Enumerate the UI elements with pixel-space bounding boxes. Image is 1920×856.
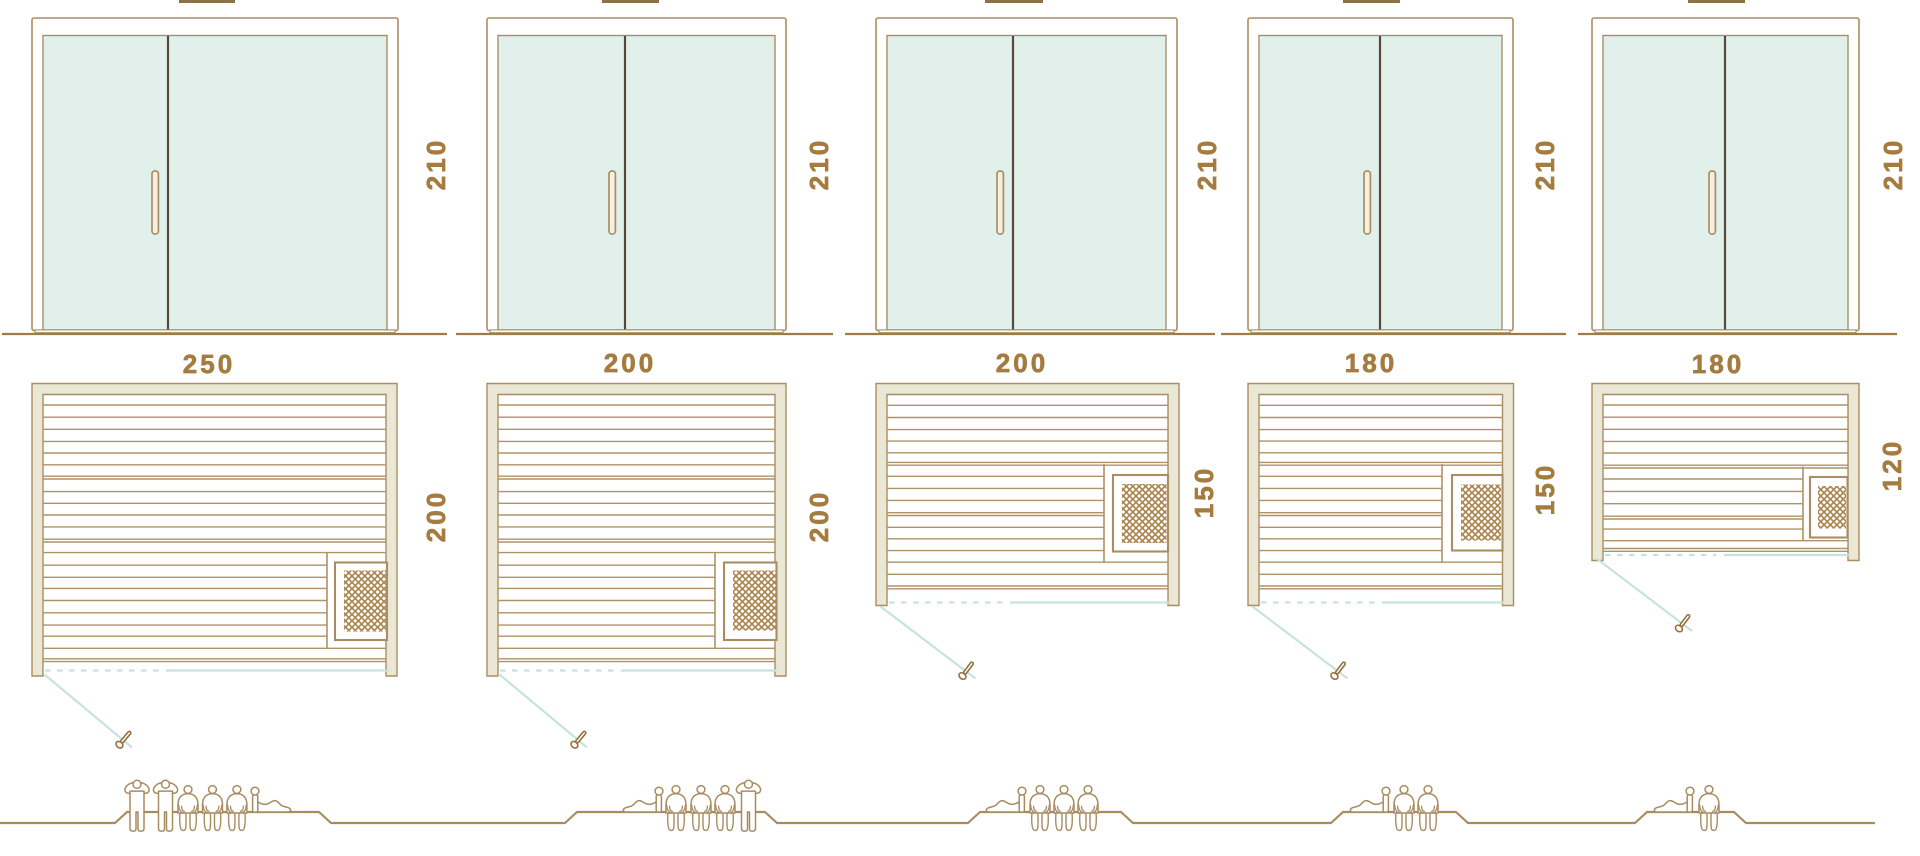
- svg-text:200: 200: [804, 490, 834, 542]
- svg-text:150: 150: [1189, 466, 1219, 518]
- svg-text:210: 210: [1192, 138, 1222, 190]
- svg-text:250: 250: [183, 349, 235, 379]
- svg-text:200: 200: [996, 348, 1048, 378]
- svg-text:180: 180: [1345, 348, 1397, 378]
- svg-text:150: 150: [1530, 463, 1560, 515]
- svg-text:120: 120: [1877, 439, 1907, 491]
- svg-text:210: 210: [421, 138, 451, 190]
- svg-text:200: 200: [604, 348, 656, 378]
- svg-text:200: 200: [421, 490, 451, 542]
- svg-text:180: 180: [1692, 349, 1744, 379]
- svg-text:210: 210: [804, 138, 834, 190]
- svg-text:210: 210: [1878, 138, 1908, 190]
- svg-text:210: 210: [1530, 138, 1560, 190]
